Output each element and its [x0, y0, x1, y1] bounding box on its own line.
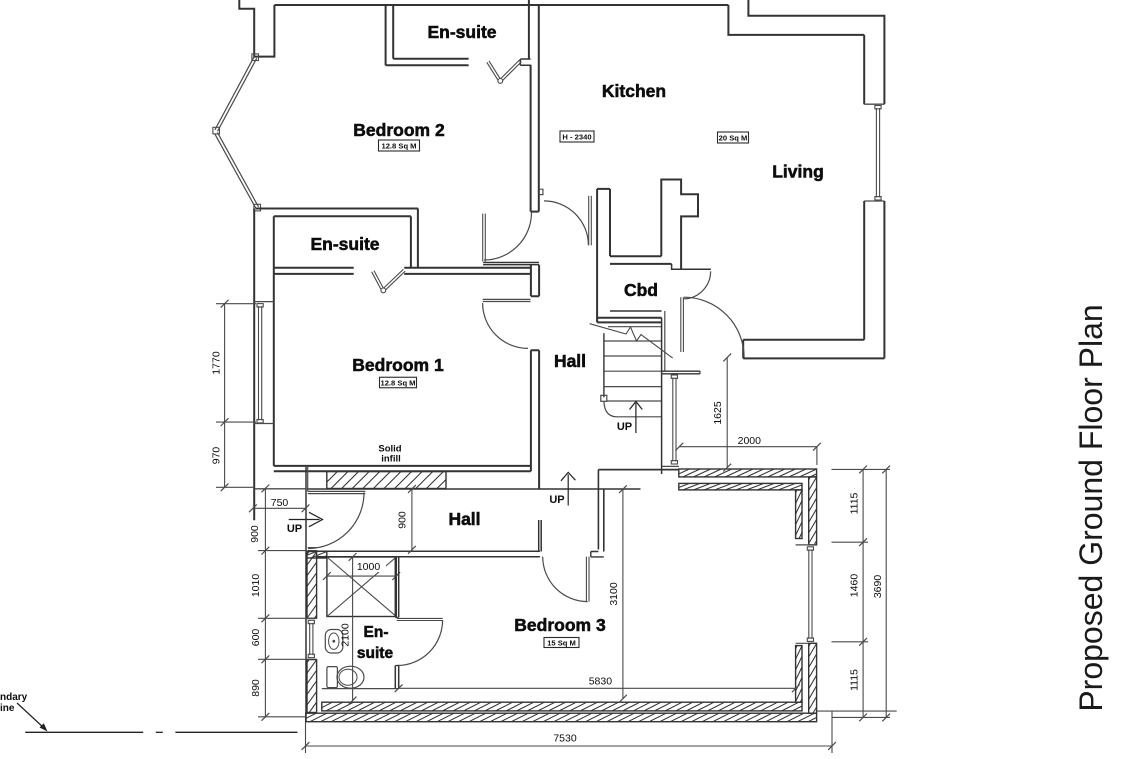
svg-text:7530: 7530 — [553, 733, 577, 745]
svg-text:1000: 1000 — [357, 561, 381, 573]
svg-text:970: 970 — [211, 447, 223, 465]
svg-text:890: 890 — [250, 679, 262, 697]
svg-text:1625: 1625 — [712, 401, 724, 425]
svg-text:1460: 1460 — [849, 574, 861, 598]
svg-text:suite: suite — [357, 645, 394, 662]
svg-text:1010: 1010 — [250, 574, 262, 598]
svg-text:12.8 Sq M: 12.8 Sq M — [381, 141, 416, 150]
svg-text:1770: 1770 — [211, 351, 223, 375]
svg-text:infill: infill — [381, 454, 401, 465]
svg-text:Hall: Hall — [448, 509, 480, 529]
svg-text:750: 750 — [271, 497, 289, 509]
svg-text:Bedroom 1: Bedroom 1 — [352, 355, 444, 375]
svg-text:3690: 3690 — [872, 575, 884, 599]
svg-text:1115: 1115 — [849, 492, 861, 514]
svg-text:12.8 Sq M: 12.8 Sq M — [380, 378, 415, 387]
svg-text:ine: ine — [0, 703, 15, 714]
svg-text:Kitchen: Kitchen — [602, 81, 666, 101]
svg-text:5830: 5830 — [589, 676, 613, 688]
svg-text:Living: Living — [772, 162, 824, 182]
svg-text:UP: UP — [549, 494, 564, 506]
svg-text:En-suite: En-suite — [310, 234, 379, 254]
svg-text:ndary: ndary — [0, 692, 28, 703]
svg-text:UP: UP — [617, 421, 632, 433]
svg-text:600: 600 — [250, 629, 262, 647]
svg-text:En-: En- — [364, 624, 389, 641]
svg-text:3100: 3100 — [608, 582, 620, 606]
svg-text:Bedroom 2: Bedroom 2 — [353, 120, 445, 140]
svg-text:900: 900 — [249, 525, 261, 543]
svg-text:900: 900 — [397, 511, 409, 529]
svg-text:Cbd: Cbd — [624, 280, 658, 300]
svg-text:2000: 2000 — [738, 435, 762, 447]
svg-text:Proposed Ground Floor Plan: Proposed Ground Floor Plan — [1073, 304, 1109, 711]
svg-text:UP: UP — [287, 523, 302, 535]
svg-text:H - 2340: H - 2340 — [562, 132, 591, 141]
svg-text:1115: 1115 — [849, 669, 861, 691]
svg-text:2100: 2100 — [339, 623, 351, 647]
svg-text:20 Sq M: 20 Sq M — [719, 133, 748, 142]
svg-text:Hall: Hall — [554, 351, 586, 371]
svg-text:En-suite: En-suite — [427, 22, 496, 42]
svg-text:15 Sq M: 15 Sq M — [547, 638, 576, 647]
svg-text:Bedroom 3: Bedroom 3 — [514, 615, 606, 635]
